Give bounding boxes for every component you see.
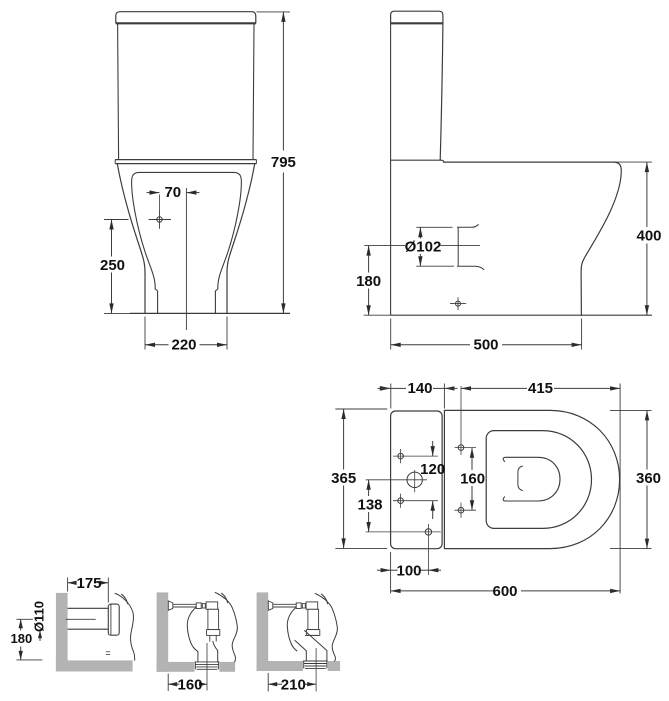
svg-text:160: 160 [460, 471, 485, 488]
svg-text:415: 415 [528, 380, 553, 397]
svg-text:400: 400 [636, 228, 661, 245]
svg-text:360: 360 [636, 470, 661, 487]
svg-text:180: 180 [356, 273, 381, 290]
svg-text:Ø102: Ø102 [405, 239, 442, 256]
svg-text:365: 365 [331, 470, 356, 487]
svg-text:220: 220 [171, 337, 196, 354]
svg-text:160: 160 [177, 676, 202, 693]
svg-text:100: 100 [396, 562, 421, 579]
svg-text:Ø110: Ø110 [31, 601, 46, 632]
svg-text:210: 210 [281, 676, 306, 693]
svg-text:140: 140 [407, 380, 432, 397]
svg-text:600: 600 [492, 583, 517, 600]
svg-text:180: 180 [11, 631, 33, 646]
svg-text:120: 120 [420, 461, 445, 478]
svg-text:250: 250 [100, 257, 125, 274]
svg-text:795: 795 [271, 154, 296, 171]
svg-text:500: 500 [473, 337, 498, 354]
svg-text:138: 138 [357, 496, 382, 513]
svg-text:175: 175 [76, 575, 101, 592]
svg-text:70: 70 [164, 184, 181, 201]
